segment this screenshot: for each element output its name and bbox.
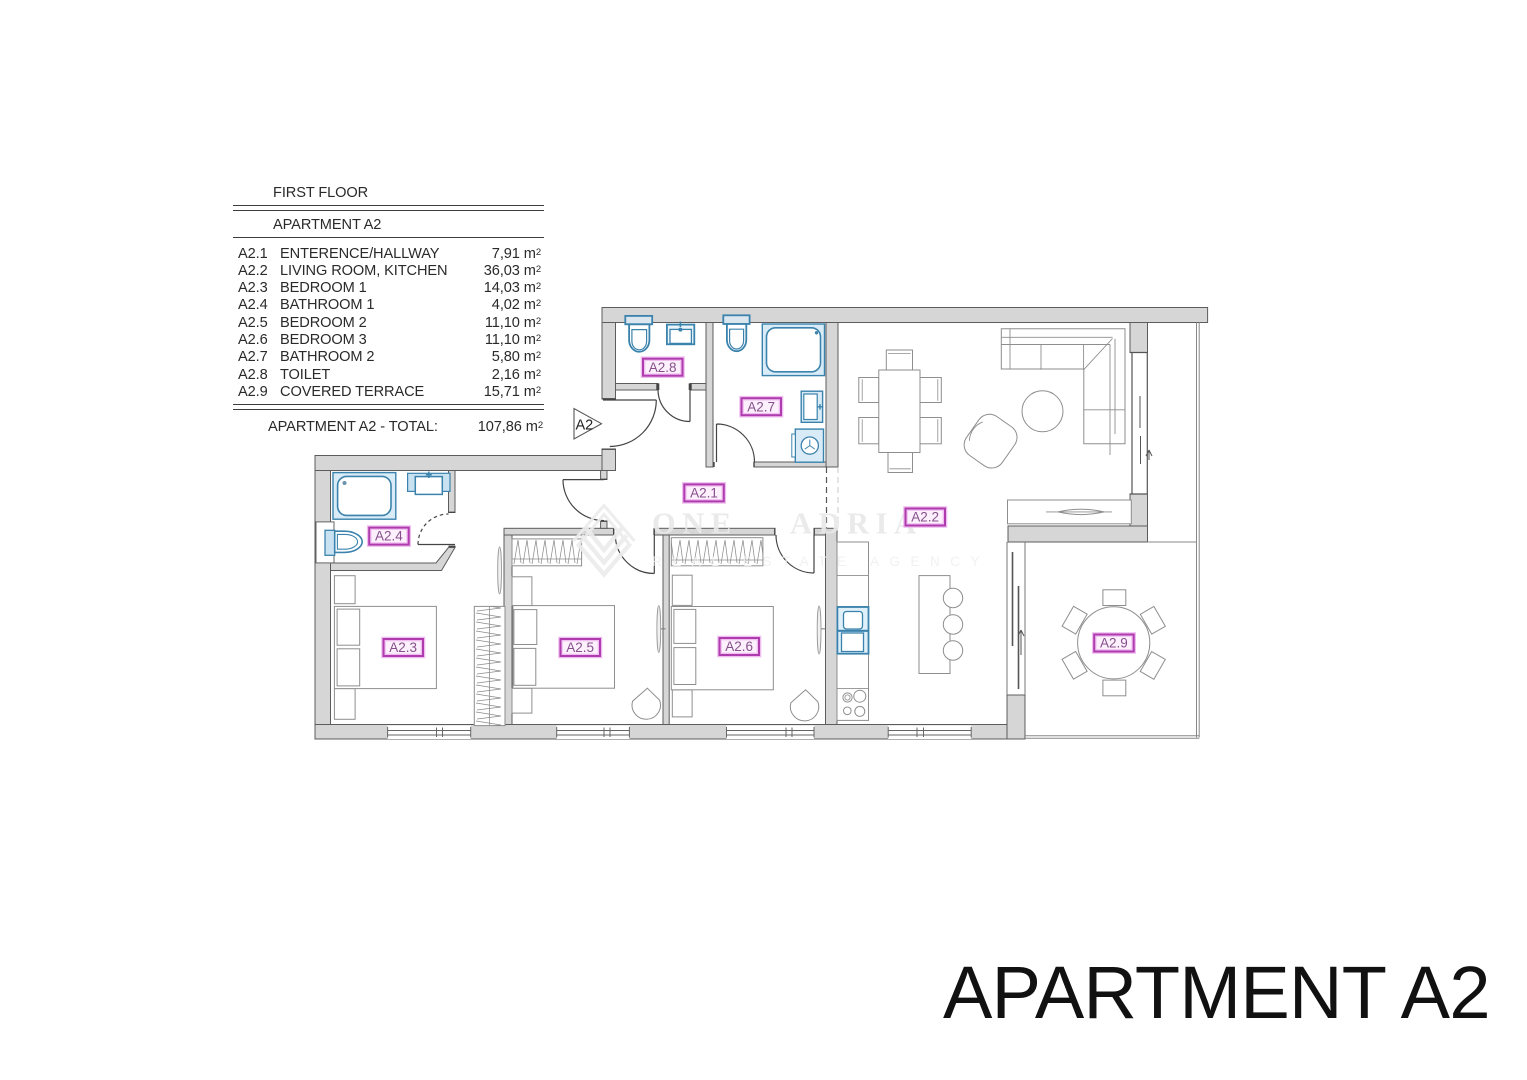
svg-text:A2.8: A2.8	[649, 360, 677, 375]
svg-text:A2.9: A2.9	[1100, 636, 1128, 651]
svg-text:ONE: ONE	[652, 507, 738, 541]
svg-text:A2.7: A2.7	[747, 399, 775, 414]
svg-text:A2.2: A2.2	[911, 510, 939, 525]
svg-text:A2.4: A2.4	[375, 529, 403, 544]
svg-text:A2.3: A2.3	[389, 640, 417, 655]
svg-text:ADRIA: ADRIA	[790, 507, 922, 541]
svg-text:A2.5: A2.5	[566, 640, 594, 655]
svg-text:A2.1: A2.1	[690, 486, 718, 501]
svg-text:REAL ESTATE AGENCY: REAL ESTATE AGENCY	[652, 554, 990, 569]
svg-text:A2.6: A2.6	[725, 639, 753, 654]
svg-text:A2: A2	[576, 418, 594, 434]
